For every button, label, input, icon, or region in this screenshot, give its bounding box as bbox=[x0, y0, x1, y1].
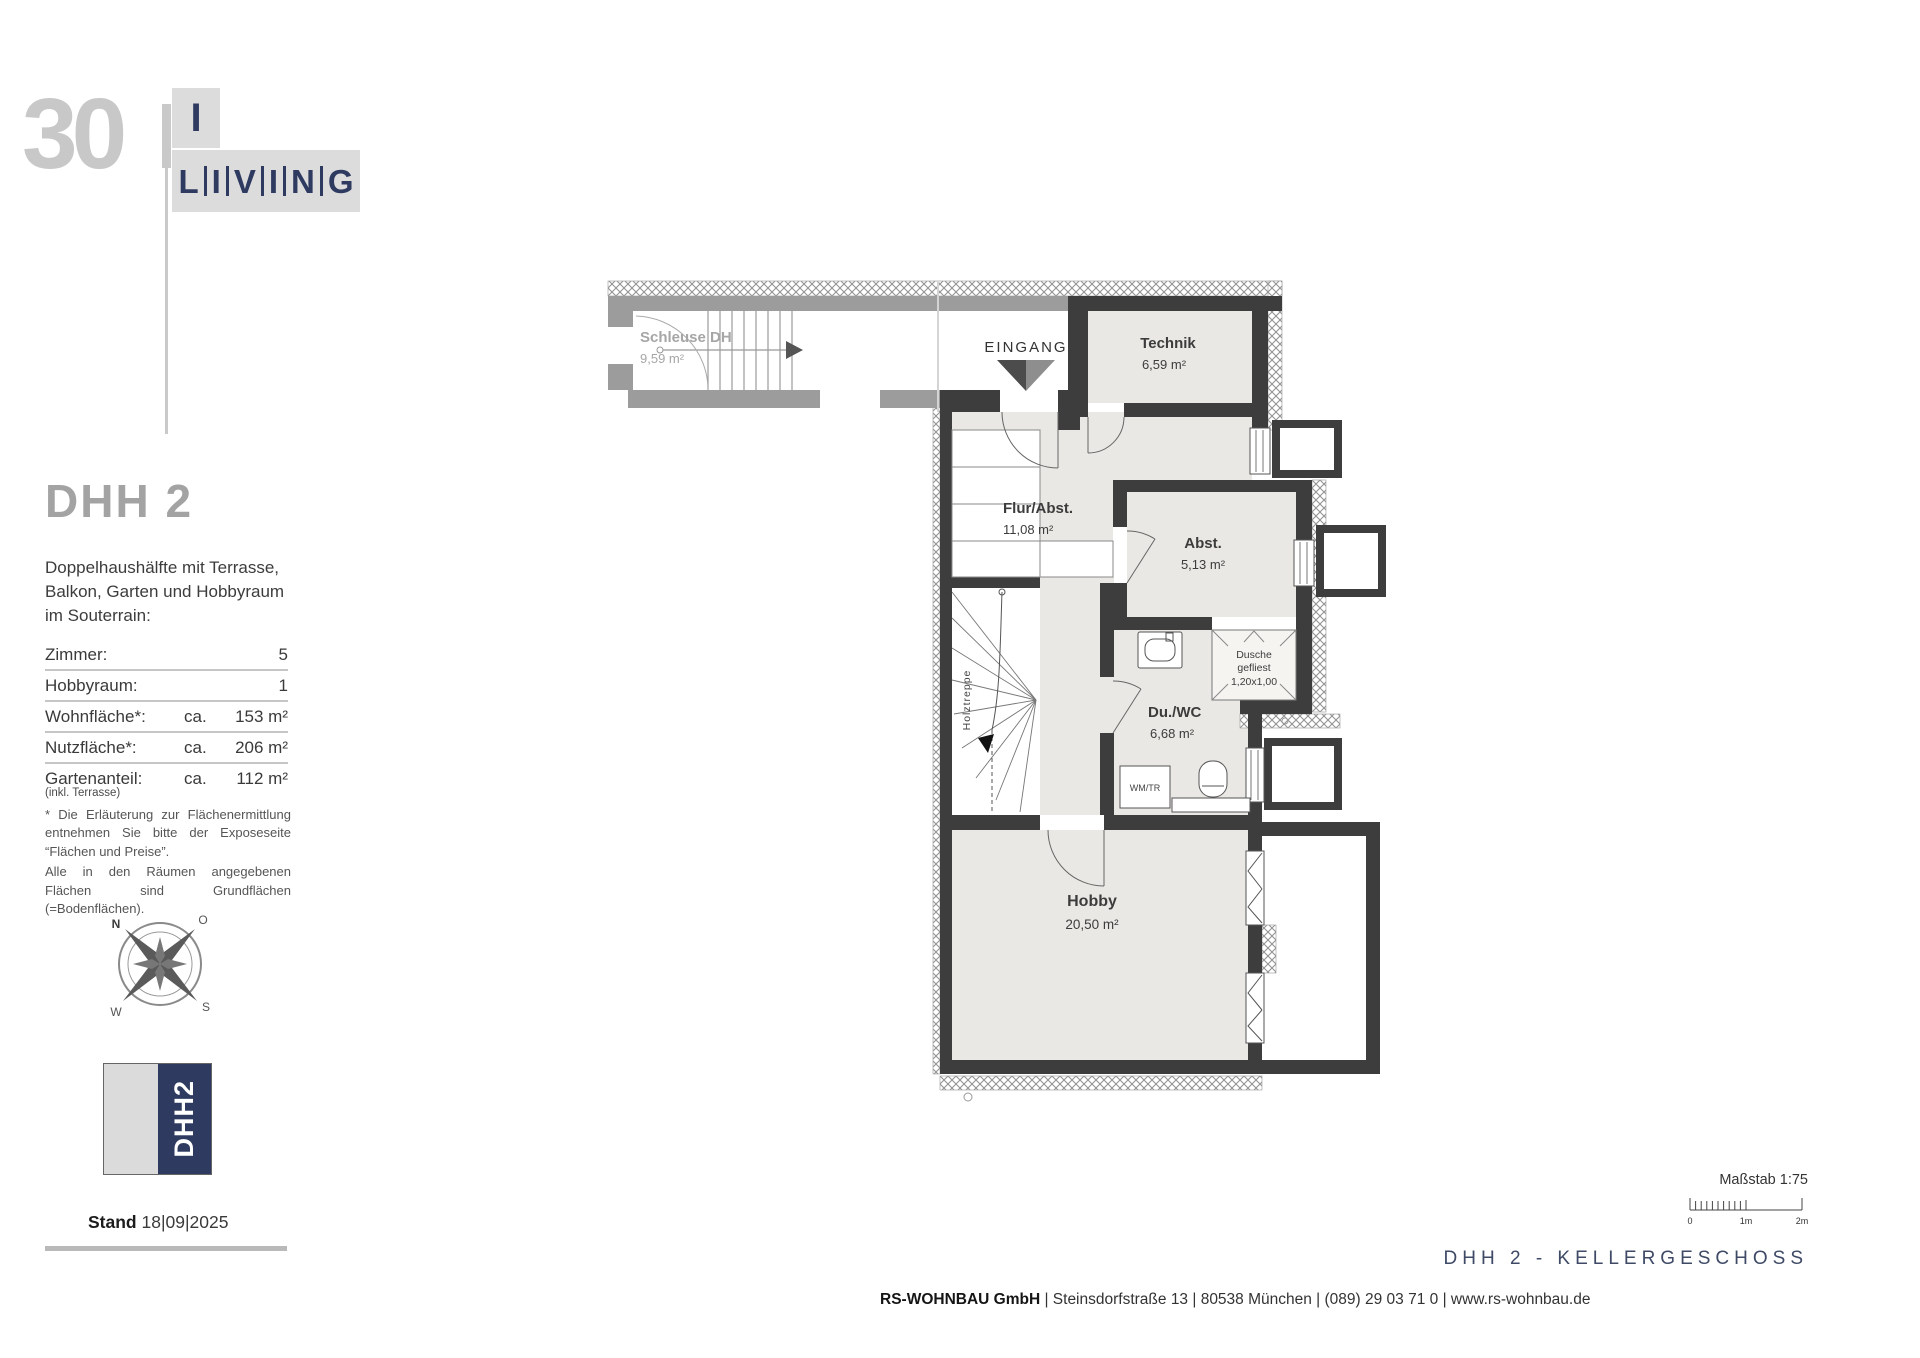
spec-label: Wohnfläche*: bbox=[45, 707, 184, 727]
logo-letter-separator bbox=[320, 166, 323, 196]
dusche-label-2: gefliest bbox=[1237, 662, 1270, 674]
logo-divider-line bbox=[165, 168, 168, 434]
spec-prefix: ca. bbox=[184, 707, 218, 727]
stair-direction-arrow bbox=[786, 341, 803, 359]
page: { "logo": { "number": "30", "i": "I", "l… bbox=[0, 0, 1920, 1358]
unit-title: DHH 2 bbox=[45, 474, 193, 528]
spec-row-nutzflaeche: Nutzfläche*: ca. 206 m² bbox=[45, 733, 288, 764]
spec-label: Zimmer: bbox=[45, 645, 184, 665]
entrance-arrow-icon bbox=[997, 360, 1055, 391]
hobby-floor bbox=[952, 830, 1248, 1060]
stair-walk-line bbox=[992, 592, 1002, 730]
compass-n-label: N bbox=[112, 917, 121, 931]
logo-letter: L bbox=[178, 165, 198, 198]
abst-area: 5,13 m² bbox=[1181, 557, 1226, 572]
stand-date: Stand 18|09|2025 bbox=[88, 1212, 228, 1233]
abst-label: Abst. bbox=[1184, 535, 1222, 552]
spec-label: Hobbyraum: bbox=[45, 676, 184, 696]
logo-letter: G bbox=[328, 165, 354, 198]
spec-value: 112 m² bbox=[218, 769, 288, 789]
marker-circle bbox=[964, 1093, 972, 1101]
unit-badge-label: DHH2 bbox=[169, 1080, 200, 1158]
logo-letter-separator bbox=[261, 166, 264, 196]
logo-letter: I bbox=[269, 165, 278, 198]
spec-row-wohnflaeche: Wohnfläche*: ca. 153 m² bbox=[45, 702, 288, 733]
spec-sublabel: (inkl. Terrasse) bbox=[45, 787, 184, 799]
spec-prefix: ca. bbox=[184, 769, 218, 789]
hobby-area: 20,50 m² bbox=[1065, 917, 1119, 932]
schleuse-label: Schleuse DH bbox=[640, 329, 732, 346]
logo-letter-separator bbox=[226, 166, 229, 196]
unit-description: Doppelhaushälfte mit Terrasse, Balkon, G… bbox=[45, 556, 295, 628]
spec-row-hobbyraum: Hobbyraum: 1 bbox=[45, 671, 288, 702]
spec-label: Gartenanteil: bbox=[45, 769, 142, 788]
floor-plan: Schleuse DH 9,59 m² EINGANG Technik 6,59… bbox=[580, 260, 1420, 1140]
holztreppe-label: Holztreppe bbox=[961, 670, 973, 731]
spec-value: 153 m² bbox=[218, 707, 288, 727]
washbasin bbox=[1138, 632, 1182, 668]
technik-label: Technik bbox=[1140, 335, 1196, 352]
spec-value: 206 m² bbox=[218, 738, 288, 758]
logo-divider-bar bbox=[162, 104, 171, 168]
window bbox=[1246, 748, 1264, 802]
company-footer: RS-WOHNBAU GmbH | Steinsdorfstraße 13 | … bbox=[880, 1291, 1590, 1309]
spec-prefix: ca. bbox=[184, 738, 218, 758]
logo-living: LIVING bbox=[172, 150, 360, 212]
stair-down-arrow bbox=[978, 734, 994, 753]
logo-letter: V bbox=[234, 165, 256, 198]
flur-area: 11,08 m² bbox=[1003, 522, 1054, 537]
logo-i: I bbox=[190, 98, 201, 138]
abst-floor bbox=[1127, 492, 1296, 617]
spec-value: 1 bbox=[218, 676, 288, 696]
duwc-area: 6,68 m² bbox=[1150, 726, 1195, 741]
spec-row-gartenanteil: Gartenanteil:(inkl. Terrasse) ca. 112 m² bbox=[45, 764, 288, 803]
window bbox=[1294, 540, 1314, 586]
unit-badge-navy-half: DHH2 bbox=[158, 1064, 212, 1174]
wmtr-label: WM/TR bbox=[1130, 783, 1161, 793]
compass-s-label: S bbox=[202, 1000, 210, 1014]
spec-row-zimmer: Zimmer: 5 bbox=[45, 640, 288, 671]
logo-i-block: I bbox=[172, 88, 220, 148]
duwc-label: Du./WC bbox=[1148, 704, 1201, 721]
schleuse-area: 9,59 m² bbox=[640, 351, 685, 366]
company-name: RS-WOHNBAU GmbH bbox=[880, 1291, 1040, 1308]
unit-badge-gray-half bbox=[104, 1064, 158, 1174]
technik-area: 6,59 m² bbox=[1142, 357, 1187, 372]
company-address: | Steinsdorfstraße 13 | 80538 München | … bbox=[1040, 1291, 1590, 1308]
scale-tick-2m: 2m bbox=[1796, 1216, 1809, 1226]
compass-w-label: W bbox=[110, 1005, 122, 1019]
spec-value: 5 bbox=[218, 645, 288, 665]
spec-table: Zimmer: 5 Hobbyraum: 1 Wohnfläche*: ca. … bbox=[45, 640, 288, 803]
logo-letter-separator bbox=[283, 166, 286, 196]
scale-tick-0: 0 bbox=[1687, 1216, 1692, 1226]
logo-letter: N bbox=[291, 165, 315, 198]
dusche-label-3: 1,20x1,00 bbox=[1231, 676, 1277, 688]
stand-divider bbox=[45, 1246, 287, 1251]
unit-badge: DHH2 bbox=[103, 1063, 212, 1175]
stand-label: Stand bbox=[88, 1212, 137, 1232]
logo-number: 30 bbox=[22, 84, 121, 184]
scale-tick-1m: 1m bbox=[1740, 1216, 1753, 1226]
scale-label: Maßstab 1:75 bbox=[1719, 1172, 1808, 1188]
compass-rose-icon: N O S W bbox=[97, 901, 223, 1027]
stand-value: 18|09|2025 bbox=[142, 1212, 229, 1232]
compass-o-label: O bbox=[198, 913, 207, 927]
spec-label: Nutzfläche*: bbox=[45, 738, 184, 758]
footnote-line-1: * Die Erläuterung zur Flächenermittlung … bbox=[45, 806, 291, 861]
scale-bar: 0 1m 2m bbox=[1686, 1196, 1814, 1232]
dusche-label-1: Dusche bbox=[1236, 649, 1272, 661]
spec-label-wrap: Gartenanteil:(inkl. Terrasse) bbox=[45, 769, 184, 799]
flur-label: Flur/Abst. bbox=[1003, 500, 1073, 517]
window bbox=[1250, 428, 1270, 474]
logo-letter-separator bbox=[204, 166, 207, 196]
hobby-label: Hobby bbox=[1067, 893, 1117, 910]
eingang-label: EINGANG bbox=[984, 339, 1067, 356]
plan-title: DHH 2 - KELLERGESCHOSS bbox=[1444, 1248, 1808, 1270]
logo-letter: I bbox=[212, 165, 221, 198]
